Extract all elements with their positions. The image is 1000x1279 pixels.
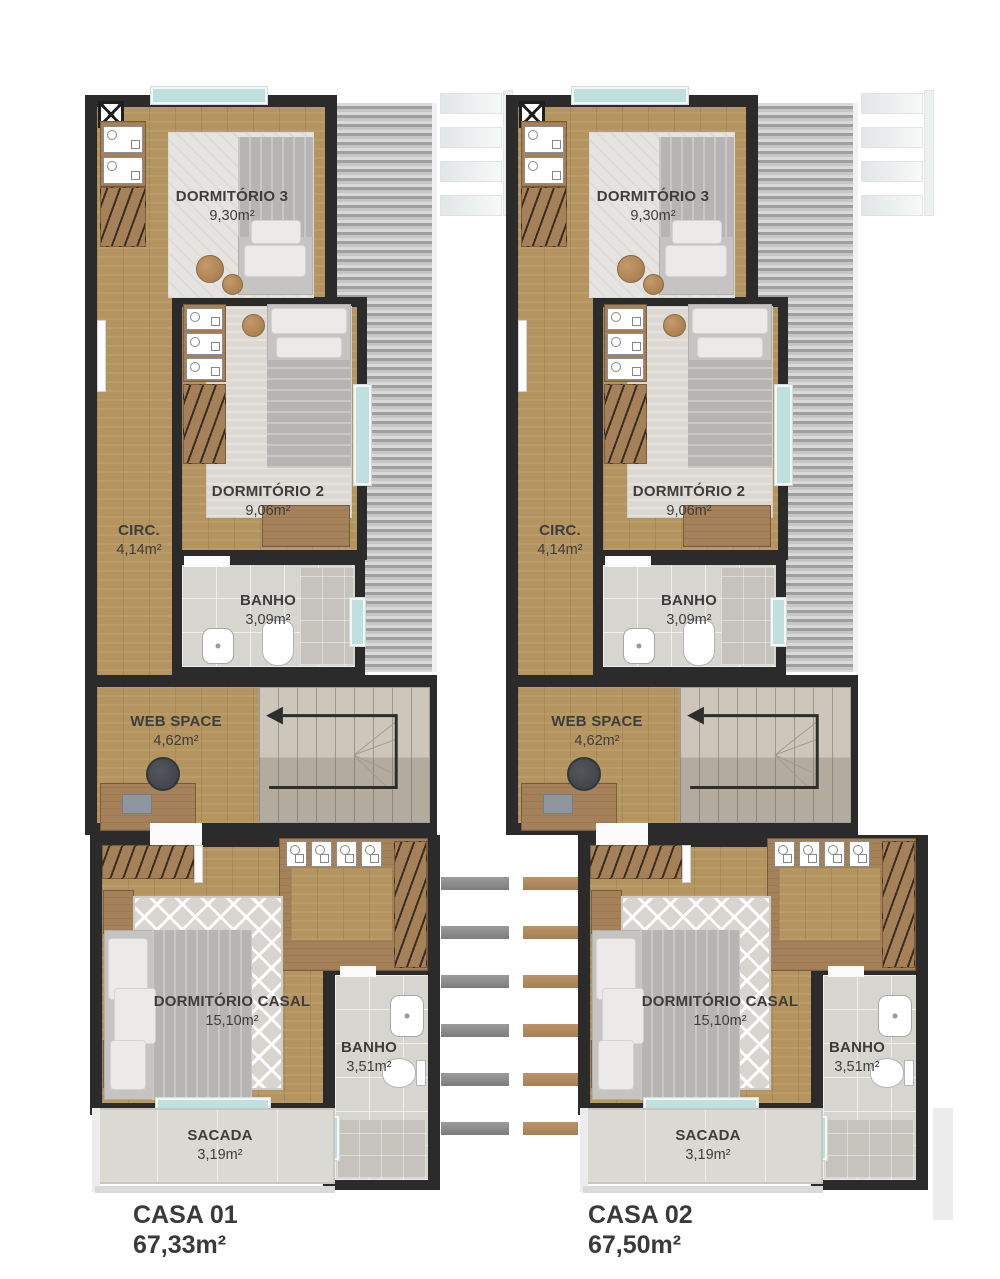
window: [771, 598, 786, 646]
pergola-bar-icon: [441, 926, 509, 939]
room-area: 3,19m²: [675, 1145, 740, 1165]
room-area: 4,62m²: [551, 731, 643, 751]
door-leaf: [518, 320, 527, 392]
room-label-banho-upper-casa2: BANHO 3,09m²: [661, 591, 717, 630]
room-label-web-casa2: WEB SPACE 4,62m²: [551, 712, 643, 751]
vanity-icon: [824, 841, 845, 867]
wardrobe-hangers-icon: [590, 845, 682, 879]
room-name: DORMITÓRIO 3: [176, 187, 288, 206]
room-area: 9,30m²: [176, 206, 288, 226]
room-name: CIRC.: [116, 521, 161, 540]
side-table-icon: [643, 274, 664, 295]
room-name: BANHO: [240, 591, 296, 610]
room-area: 3,19m²: [187, 1145, 252, 1165]
room-area: 3,09m²: [661, 610, 717, 630]
toilet-tank: [904, 1060, 914, 1086]
closet-hangers-icon: [882, 841, 915, 968]
pergola-bar-icon: [523, 926, 578, 939]
room-label-dorm2-casa1: DORMITÓRIO 2 9,06m²: [212, 482, 324, 521]
pillow: [697, 337, 763, 358]
room-label-dorm3-casa2: DORMITÓRIO 3 9,30m²: [597, 187, 709, 226]
side-table-icon: [617, 255, 645, 283]
room-name: SACADA: [187, 1126, 252, 1145]
window: [775, 385, 792, 485]
pillow: [598, 1040, 634, 1090]
room-label-casal-casa2: DORMITÓRIO CASAL 15,10m²: [642, 992, 799, 1031]
house-label-casa-01: CASA 01 67,33m²: [133, 1200, 238, 1260]
room-label-circ-casa1: CIRC. 4,14m²: [116, 521, 161, 560]
room-name: BANHO: [341, 1038, 397, 1057]
room-name: DORMITÓRIO 2: [633, 482, 745, 501]
room-label-banho-suite-casa2: BANHO 3,51m²: [829, 1038, 885, 1077]
room-name: BANHO: [661, 591, 717, 610]
door-leaf: [682, 845, 691, 883]
trellis-rail: [924, 90, 934, 216]
wardrobe-hangers-icon: [604, 384, 647, 464]
desk-icon: [607, 333, 644, 355]
room-label-circ-casa2: CIRC. 4,14m²: [537, 521, 582, 560]
room-label-web-casa1: WEB SPACE 4,62m²: [130, 712, 222, 751]
house-total-area: 67,50m²: [588, 1230, 693, 1260]
room-area: 9,06m²: [633, 501, 745, 521]
room-area: 15,10m²: [154, 1011, 311, 1031]
house-casa-02: [0, 0, 1000, 1279]
closet-floor: [779, 868, 880, 940]
house-name: CASA 01: [133, 1200, 238, 1230]
room-area: 3,51m²: [341, 1057, 397, 1077]
vanity-icon: [799, 841, 820, 867]
desk-icon: [607, 308, 644, 330]
pillow: [692, 308, 768, 334]
room-label-banho-upper-casa1: BANHO 3,09m²: [240, 591, 296, 630]
room-name: WEB SPACE: [551, 712, 643, 731]
sink-icon: [878, 995, 912, 1037]
room-area: 4,62m²: [130, 731, 222, 751]
room-name: DORMITÓRIO 2: [212, 482, 324, 501]
shower-icon: [721, 568, 774, 665]
trellis-icon: [861, 93, 923, 114]
shower-icon: [825, 1120, 914, 1178]
room-area: 15,10m²: [642, 1011, 799, 1031]
ground-edge: [583, 1186, 823, 1193]
wardrobe-hangers-icon: [521, 187, 567, 247]
trellis-icon: [861, 127, 923, 148]
pergola-bar-icon: [441, 1073, 509, 1086]
room-name: WEB SPACE: [130, 712, 222, 731]
pillow: [602, 988, 644, 1044]
room-area: 3,51m²: [829, 1057, 885, 1077]
room-area: 4,14m²: [116, 540, 161, 560]
room-name: CIRC.: [537, 521, 582, 540]
pergola-bar-icon: [523, 975, 578, 988]
room-name: SACADA: [675, 1126, 740, 1145]
room-label-sacada-casa1: SACADA 3,19m²: [187, 1126, 252, 1165]
sink-icon: [623, 628, 655, 664]
room-name: DORMITÓRIO CASAL: [154, 992, 311, 1011]
stair-direction-arrow-icon: [680, 688, 850, 822]
trellis-icon: [861, 161, 923, 182]
bed-blanket: [688, 360, 772, 468]
desk-icon: [524, 157, 564, 184]
trellis-icon: [861, 195, 923, 216]
room-area: 3,09m²: [240, 610, 296, 630]
room-area: 9,06m²: [212, 501, 324, 521]
floor-plan: DORMITÓRIO 3 9,30m² DORMITÓRIO 2 9,06m² …: [0, 0, 1000, 1279]
staircase: [679, 687, 851, 823]
banho-door-opening: [828, 966, 864, 977]
pillow: [665, 245, 727, 277]
room-area: 4,14m²: [537, 540, 582, 560]
pergola-bar-icon: [523, 1122, 578, 1135]
pergola-bar-icon: [523, 877, 578, 890]
wall-edge: [580, 1108, 588, 1192]
room-label-dorm2-casa2: DORMITÓRIO 2 9,06m²: [633, 482, 745, 521]
wall-edge: [933, 1108, 953, 1220]
pergola-bar-icon: [441, 877, 509, 890]
room-name: BANHO: [829, 1038, 885, 1057]
room-label-casal-casa1: DORMITÓRIO CASAL 15,10m²: [154, 992, 311, 1031]
pergola-bar-icon: [523, 1073, 578, 1086]
room-label-banho-suite-casa1: BANHO 3,51m²: [341, 1038, 397, 1077]
room-label-sacada-casa2: SACADA 3,19m²: [675, 1126, 740, 1165]
room-name: DORMITÓRIO 3: [597, 187, 709, 206]
room-label-dorm3-casa1: DORMITÓRIO 3 9,30m²: [176, 187, 288, 226]
house-total-area: 67,33m²: [133, 1230, 238, 1260]
house-name: CASA 02: [588, 1200, 693, 1230]
side-table-icon: [663, 314, 686, 337]
nightstand: [591, 890, 622, 934]
banho-door-opening: [605, 556, 651, 567]
desk-icon: [524, 126, 564, 153]
office-chair-icon: [567, 757, 601, 791]
house-label-casa-02: CASA 02 67,50m²: [588, 1200, 693, 1260]
monitor-icon: [543, 794, 573, 814]
pergola-bar-icon: [441, 1024, 509, 1037]
desk-icon: [607, 358, 644, 380]
pergola-bar-icon: [441, 975, 509, 988]
pergola-bar-icon: [441, 1122, 509, 1135]
window: [572, 87, 688, 104]
vanity-icon: [774, 841, 795, 867]
vanity-icon: [849, 841, 870, 867]
room-name: DORMITÓRIO CASAL: [642, 992, 799, 1011]
room-area: 9,30m²: [597, 206, 709, 226]
pergola-bar-icon: [523, 1024, 578, 1037]
